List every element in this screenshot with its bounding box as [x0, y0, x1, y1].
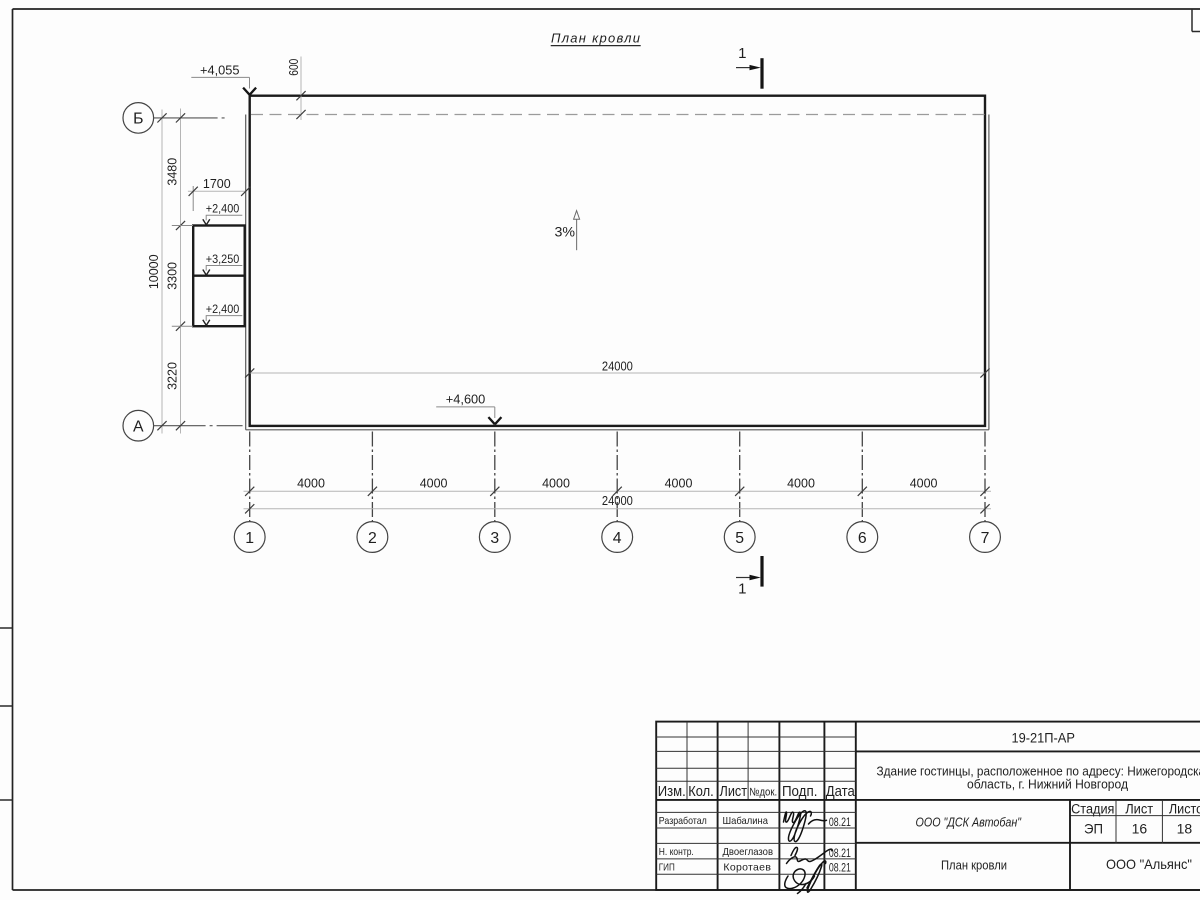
svg-text:7: 7: [981, 530, 990, 547]
svg-text:4000: 4000: [787, 477, 815, 491]
svg-text:Разработал: Разработал: [659, 815, 707, 827]
svg-text:Лист: Лист: [720, 784, 748, 800]
svg-text:600: 600: [287, 59, 301, 76]
svg-text:Коротаев: Коротаев: [723, 862, 771, 874]
svg-text:Шабалина: Шабалина: [723, 815, 769, 827]
svg-text:№док.: №док.: [749, 786, 777, 798]
svg-text:Б: Б: [133, 111, 143, 128]
svg-text:+2,400: +2,400: [206, 202, 240, 216]
svg-text:3%: 3%: [555, 224, 576, 240]
svg-text:1: 1: [738, 45, 746, 62]
svg-text:1: 1: [738, 580, 746, 597]
svg-text:План кровли: План кровли: [551, 31, 640, 46]
svg-text:5: 5: [735, 530, 744, 547]
svg-text:3: 3: [490, 530, 499, 547]
svg-text:24000: 24000: [602, 360, 633, 374]
svg-text:3220: 3220: [165, 362, 179, 390]
svg-text:2: 2: [368, 530, 377, 547]
svg-text:Изм.: Изм.: [658, 784, 686, 800]
svg-text:18: 18: [1177, 820, 1193, 836]
svg-text:4000: 4000: [420, 477, 448, 491]
svg-text:Подп.: Подп.: [782, 784, 818, 800]
svg-text:ООО "Альянс": ООО "Альянс": [1106, 856, 1192, 872]
svg-text:область, г. Нижний Новгород: область, г. Нижний Новгород: [967, 776, 1128, 791]
svg-text:10000: 10000: [147, 254, 161, 289]
svg-text:ЭП: ЭП: [1084, 820, 1103, 836]
svg-text:ООО "ДСК Автобан": ООО "ДСК Автобан": [916, 815, 1023, 830]
svg-text:Дата: Дата: [826, 784, 856, 800]
svg-text:4000: 4000: [910, 477, 938, 491]
svg-text:План кровли: План кровли: [941, 858, 1007, 873]
svg-text:Кол.: Кол.: [688, 784, 714, 800]
svg-text:Двоеглазов: Двоеглазов: [723, 846, 774, 858]
svg-text:1700: 1700: [203, 177, 231, 191]
svg-text:А: А: [133, 418, 144, 435]
svg-text:24000: 24000: [602, 494, 633, 508]
svg-text:Листов: Листов: [1169, 801, 1200, 816]
svg-text:6: 6: [858, 530, 867, 547]
svg-text:08.21: 08.21: [829, 863, 851, 875]
svg-text:1: 1: [245, 530, 254, 547]
svg-text:16: 16: [1132, 820, 1148, 836]
svg-text:4000: 4000: [542, 477, 570, 491]
svg-text:4000: 4000: [665, 477, 693, 491]
svg-text:Стадия: Стадия: [1071, 801, 1114, 816]
svg-text:Лист: Лист: [1125, 801, 1153, 816]
svg-text:08.21: 08.21: [829, 817, 851, 829]
svg-text:Н. контр.: Н. контр.: [659, 846, 694, 858]
svg-text:4: 4: [613, 530, 622, 547]
svg-text:3300: 3300: [165, 262, 179, 290]
svg-text:4000: 4000: [297, 477, 325, 491]
svg-text:+3,250: +3,250: [206, 252, 240, 266]
svg-text:19-21П-АР: 19-21П-АР: [1011, 729, 1075, 745]
svg-text:3480: 3480: [165, 158, 179, 186]
svg-text:+2,400: +2,400: [206, 302, 240, 316]
svg-text:ГИП: ГИП: [659, 862, 675, 874]
svg-text:+4,600: +4,600: [446, 391, 486, 406]
svg-text:+4,055: +4,055: [200, 62, 240, 77]
